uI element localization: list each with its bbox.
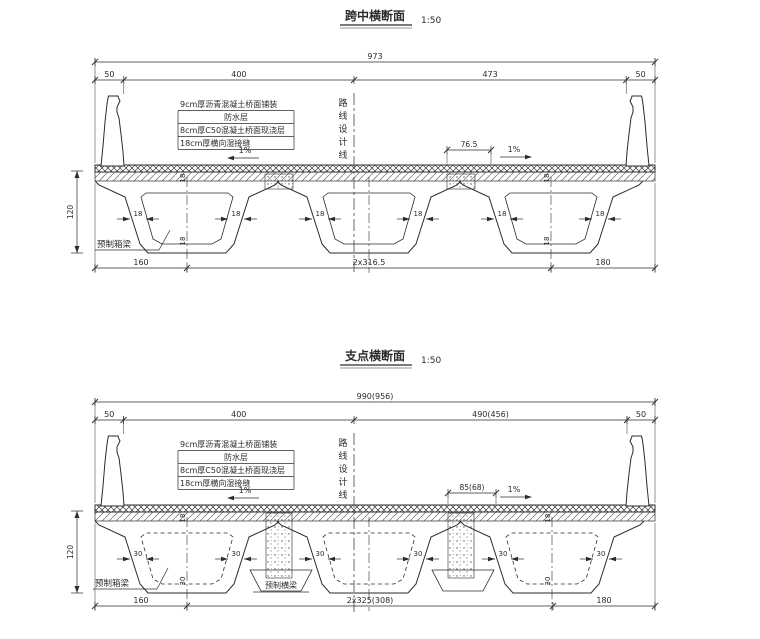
top-slab-dim: 18 xyxy=(544,514,552,523)
dim-label: 400 xyxy=(231,70,246,79)
arrowhead-icon xyxy=(227,496,234,500)
asphalt-pavement-layer xyxy=(95,505,655,512)
centerline-label-char: 计 xyxy=(338,136,347,148)
dim-label: 180 xyxy=(596,596,611,605)
centerline-label-char: 路 xyxy=(338,437,347,449)
slope-label: 1% xyxy=(508,485,521,494)
top-slab-dim: 18 xyxy=(179,514,187,523)
centerline-label-char: 线 xyxy=(338,489,347,501)
web-thickness-dim: 30 xyxy=(316,550,325,558)
deck-offset-dim: 76.5 xyxy=(461,140,478,149)
dim-label: 973 xyxy=(367,52,382,61)
arrowhead-icon xyxy=(525,155,532,159)
girder-label: 预制箱梁 xyxy=(97,239,132,250)
scale-label: 1:50 xyxy=(421,356,441,366)
barrier-parapet xyxy=(626,436,649,506)
dim-label: 2x325(308) xyxy=(347,596,394,605)
diaphragm-label: 预制横梁 xyxy=(265,580,297,590)
arrowhead-icon xyxy=(75,171,80,178)
bottom-slab-dim: 18 xyxy=(543,237,551,246)
bottom-slab-dim: 30 xyxy=(179,577,187,586)
top-slab-dim: 18 xyxy=(543,174,551,183)
arrowhead-icon xyxy=(487,217,494,221)
arrowhead-icon xyxy=(123,217,130,221)
web-thickness-dim: 18 xyxy=(134,210,143,218)
arrowhead-icon xyxy=(244,557,251,561)
web-thickness-dim: 18 xyxy=(414,210,423,218)
centerline-label-char: 设 xyxy=(338,464,347,475)
web-thickness-dim: 18 xyxy=(596,210,605,218)
dim-label: 400 xyxy=(231,410,246,419)
arrowhead-icon xyxy=(75,511,80,518)
arrowhead-icon xyxy=(305,217,312,221)
web-thickness-dim: 18 xyxy=(232,210,241,218)
drawing-line xyxy=(157,568,168,589)
annotation-line: 防水层 xyxy=(224,112,248,122)
slope-label: 1% xyxy=(239,486,252,495)
girder-height-dim: 120 xyxy=(66,545,75,560)
drawing-svg: 跨中横断面1:509735040047350181818181818181818… xyxy=(0,0,760,639)
web-thickness-dim: 18 xyxy=(316,210,325,218)
slope-label: 1% xyxy=(508,145,521,154)
arrowhead-icon xyxy=(305,557,312,561)
dim-label: 160 xyxy=(133,596,148,605)
web-thickness-dim: 30 xyxy=(414,550,423,558)
scale-label: 1:50 xyxy=(421,16,441,26)
annotation-line: 9cm厚沥青混凝土桥面铺装 xyxy=(180,99,277,109)
top-slab-dim: 18 xyxy=(179,174,187,183)
arrowhead-icon xyxy=(609,557,616,561)
dim-label: 50 xyxy=(636,70,646,79)
annotation-line: 8cm厚C50混凝土桥面现浇层 xyxy=(180,465,285,475)
centerline-label-char: 线 xyxy=(338,450,347,462)
arrowhead-icon xyxy=(426,557,433,561)
arrowhead-icon xyxy=(426,217,433,221)
arrowhead-icon xyxy=(244,217,251,221)
web-thickness-dim: 30 xyxy=(134,550,143,558)
centerline-label-char: 路 xyxy=(338,97,347,109)
annotation-line: 防水层 xyxy=(224,452,248,462)
bottom-slab-dim: 18 xyxy=(179,237,187,246)
midspan-cross-section: 跨中横断面1:509735040047350181818181818181818… xyxy=(66,8,658,273)
dim-label: 490(456) xyxy=(472,410,509,419)
web-thickness-dim: 30 xyxy=(499,550,508,558)
barrier-parapet xyxy=(101,436,124,506)
section-title: 跨中横断面 xyxy=(345,8,405,23)
asphalt-pavement-layer xyxy=(95,165,655,172)
drawing-line xyxy=(159,230,170,250)
arrowhead-icon xyxy=(525,495,532,499)
arrowhead-icon xyxy=(75,586,80,593)
girder-height-dim: 120 xyxy=(66,205,75,220)
web-thickness-dim: 30 xyxy=(597,550,606,558)
deck-offset-dim: 85(68) xyxy=(460,483,485,492)
centerline-label-char: 线 xyxy=(338,149,347,161)
arrowhead-icon xyxy=(221,557,228,561)
girder-label: 预制箱梁 xyxy=(95,578,130,589)
dim-label: 50 xyxy=(104,410,114,419)
dim-label: 990(956) xyxy=(357,392,394,401)
dim-label: 50 xyxy=(104,70,114,79)
dim-label: 2x316.5 xyxy=(353,258,386,267)
annotation-line: 8cm厚C50混凝土桥面现浇层 xyxy=(180,125,285,135)
support-cross-section: 支点横断面1:50990(956)50400490(456)5030301830… xyxy=(66,348,658,612)
arrowhead-icon xyxy=(123,557,130,561)
section-title: 支点横断面 xyxy=(344,348,405,363)
centerline-label-char: 设 xyxy=(338,124,347,135)
arrowhead-icon xyxy=(403,557,410,561)
arrowhead-icon xyxy=(488,557,495,561)
arrowhead-icon xyxy=(608,217,615,221)
arrowhead-icon xyxy=(586,557,593,561)
arrowhead-icon xyxy=(75,246,80,253)
web-thickness-dim: 30 xyxy=(232,550,241,558)
annotation-line: 9cm厚沥青混凝土桥面铺装 xyxy=(180,439,277,449)
centerline-label-char: 计 xyxy=(338,476,347,488)
barrier-parapet xyxy=(101,96,124,166)
dim-label: 160 xyxy=(133,258,148,267)
web-thickness-dim: 18 xyxy=(498,210,507,218)
bottom-slab-dim: 30 xyxy=(544,577,552,586)
barrier-parapet xyxy=(626,96,649,166)
arrowhead-icon xyxy=(227,156,234,160)
dim-label: 50 xyxy=(636,410,646,419)
centerline-label-char: 线 xyxy=(338,110,347,122)
bridge-cross-section-drawing: 跨中横断面1:509735040047350181818181818181818… xyxy=(0,0,760,639)
diaphragm-strip xyxy=(448,513,474,578)
dim-label: 473 xyxy=(482,70,497,79)
dim-label: 180 xyxy=(595,258,610,267)
slope-label: 1% xyxy=(239,146,252,155)
